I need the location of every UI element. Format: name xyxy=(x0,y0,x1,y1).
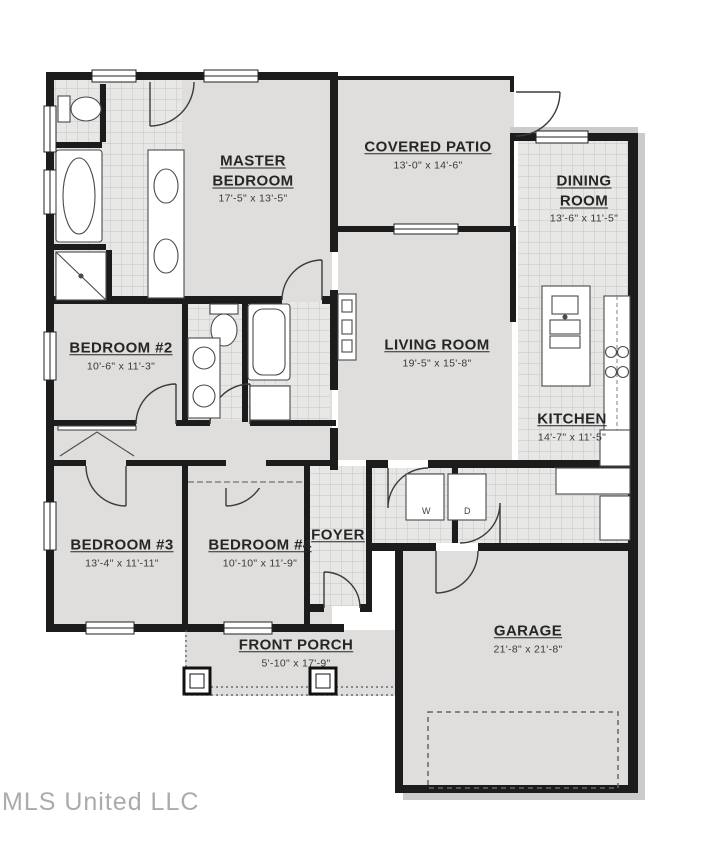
room-name: BEDROOM #3 xyxy=(47,535,197,555)
master-vanity-icon xyxy=(148,150,184,298)
room-name: LIVING ROOM xyxy=(352,335,522,355)
room-label-bedroom-2: BEDROOM #2 10'-6" x 11'-3" xyxy=(46,338,196,372)
garage-floor xyxy=(403,551,630,787)
hall-bath-closet xyxy=(250,386,290,420)
room-dims: 13'-6" x 11'-5" xyxy=(549,213,619,225)
room-dims: 10'-10" x 11'-9" xyxy=(185,557,335,569)
room-label-dining-room: DINING ROOM 13'-6" x 11'-5" xyxy=(549,172,619,225)
master-shower-icon xyxy=(56,252,106,300)
room-dims: 17'-5" x 13'-5" xyxy=(203,193,303,205)
room-dims: 21'-8" x 21'-8" xyxy=(443,643,613,655)
master-toilet-icon xyxy=(58,96,101,122)
room-dims: 10'-6" x 11'-3" xyxy=(46,360,196,372)
washer-label: W xyxy=(422,506,431,516)
room-label-foyer: FOYER xyxy=(298,525,378,547)
room-name: KITCHEN xyxy=(502,409,642,429)
porch-column xyxy=(184,668,210,694)
room-dims: 19'-5" x 15'-8" xyxy=(352,357,522,369)
room-label-living-room: LIVING ROOM 19'-5" x 15'-8" xyxy=(352,335,522,369)
room-name: FRONT PORCH xyxy=(211,635,381,655)
dryer-label: D xyxy=(464,506,471,516)
room-name: MASTER BEDROOM xyxy=(203,152,303,191)
room-dims: 13'-0" x 14'-6" xyxy=(333,159,523,171)
room-label-kitchen: KITCHEN 14'-7" x 11'-5" xyxy=(502,409,642,443)
watermark-text: MLS United LLC xyxy=(2,788,199,817)
room-label-covered-patio: COVERED PATIO 13'-0" x 14'-6" xyxy=(333,137,523,171)
room-label-garage: GARAGE 21'-8" x 21'-8" xyxy=(443,621,613,655)
room-name: GARAGE xyxy=(443,621,613,641)
room-name: COVERED PATIO xyxy=(333,137,523,157)
room-dims: 13'-4" x 11'-11" xyxy=(47,557,197,569)
room-name: FOYER xyxy=(298,525,378,545)
room-name: DINING ROOM xyxy=(549,172,619,211)
room-label-master-bedroom: MASTER BEDROOM 17'-5" x 13'-5" xyxy=(203,152,303,205)
room-dims: 14'-7" x 11'-5" xyxy=(502,431,642,443)
porch-column xyxy=(310,668,336,694)
hall-tub-icon xyxy=(248,304,290,380)
master-tub-icon xyxy=(56,150,102,242)
kitchen-island xyxy=(542,286,590,386)
room-name: BEDROOM #2 xyxy=(46,338,196,358)
room-dims: 5'-10" x 17'-9" xyxy=(211,657,381,669)
room-label-front-porch: FRONT PORCH 5'-10" x 17'-9" xyxy=(211,635,381,669)
room-label-bedroom-3: BEDROOM #3 13'-4" x 11'-11" xyxy=(47,535,197,569)
bed4-closet xyxy=(188,466,304,488)
floor-plan: W D MASTER BEDROOM 17'-5" x 13'-5" COVER… xyxy=(0,0,713,844)
